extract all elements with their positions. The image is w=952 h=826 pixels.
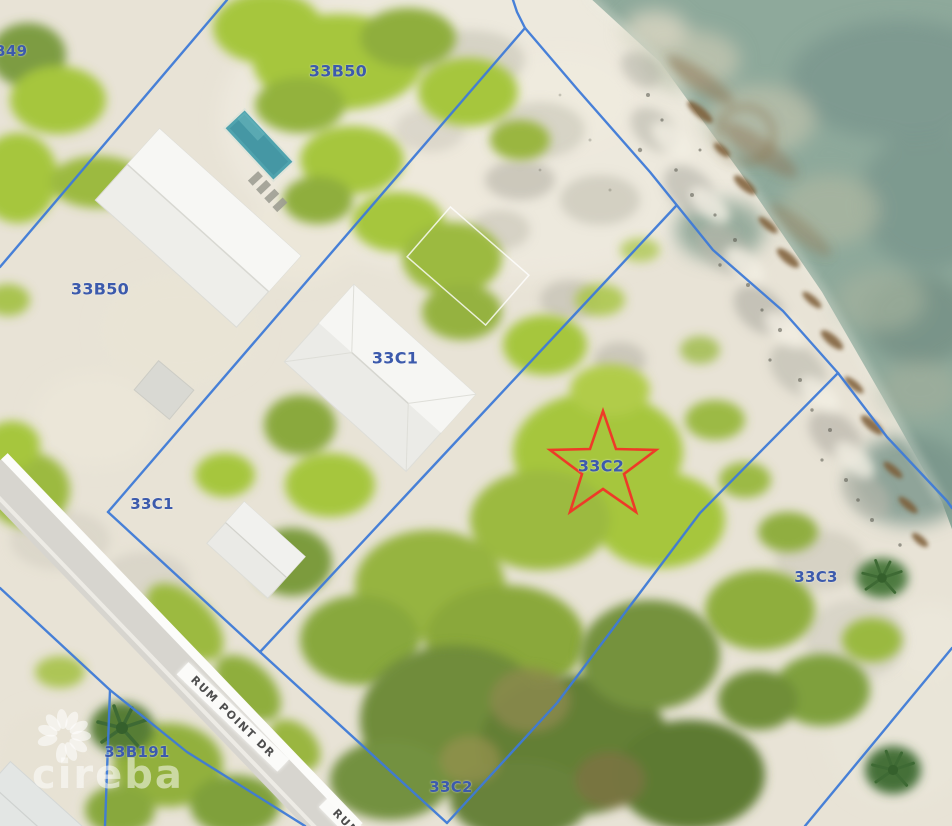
parcel-label-33b50-top: 33B50	[309, 62, 367, 81]
aerial-imagery	[0, 0, 952, 826]
parcel-label-33c2-star: 33C2	[578, 457, 624, 476]
parcel-label-33b49: 33B49	[0, 42, 27, 60]
parcel-label-33c3: 33C3	[794, 568, 838, 586]
parcel-label-33c1-center: 33C1	[372, 349, 418, 368]
parcel-label-33c2-bottom: 33C2	[429, 778, 473, 796]
parcel-label-33b50-left: 33B50	[71, 280, 129, 299]
parcel-map[interactable]: 33B49 33B50 33B50 33C1 33C1 33C2 33C3 33…	[0, 0, 952, 826]
parcel-label-33c1-lower: 33C1	[130, 495, 174, 513]
cireba-watermark: cireba	[32, 752, 184, 798]
